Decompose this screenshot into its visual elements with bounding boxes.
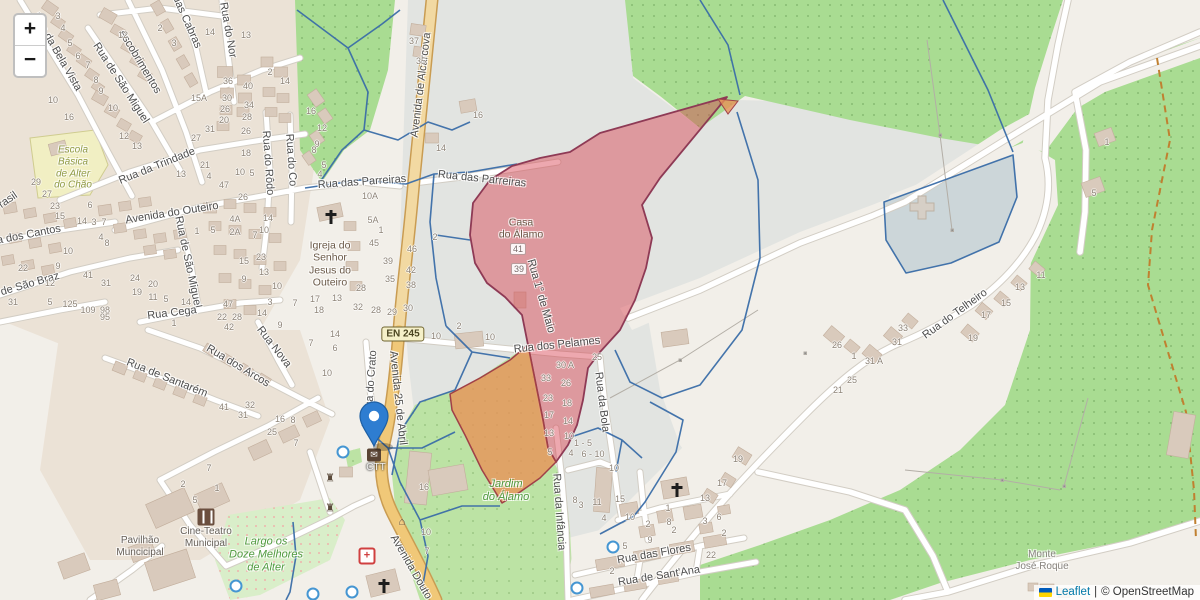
building (3, 202, 18, 214)
leaflet-link[interactable]: Leaflet (1056, 586, 1091, 598)
building (413, 46, 427, 58)
building (410, 24, 426, 37)
building (244, 204, 256, 213)
map-tiles (0, 0, 1200, 600)
building (43, 213, 56, 224)
building (63, 218, 76, 229)
building (683, 504, 703, 520)
building (133, 229, 146, 240)
building (239, 93, 252, 103)
ukraine-flag-icon (1039, 588, 1052, 597)
building (459, 99, 477, 114)
map-canvas[interactable]: Rua da Bela VistaRua de São Miguelescobr… (0, 0, 1200, 600)
building (118, 201, 131, 212)
building (209, 222, 221, 231)
attribution-bar: Leaflet | © OpenStreetMap (1034, 585, 1200, 600)
building (204, 203, 217, 213)
building (593, 467, 612, 512)
building (163, 249, 176, 260)
building (344, 222, 356, 231)
zoom-in-button[interactable]: + (15, 15, 45, 46)
building (346, 262, 358, 271)
building (224, 200, 236, 209)
building (717, 505, 730, 516)
building (153, 233, 166, 244)
building (239, 280, 251, 289)
building (41, 265, 54, 276)
building (275, 67, 288, 77)
building (261, 57, 273, 67)
building (661, 329, 689, 347)
building (340, 467, 353, 477)
building (277, 94, 289, 103)
building (218, 67, 233, 78)
building (138, 197, 151, 208)
building (657, 509, 674, 523)
building (639, 524, 656, 537)
building (48, 243, 61, 254)
attribution-separator: | (1094, 586, 1097, 598)
building (98, 204, 112, 216)
building (238, 75, 251, 85)
building (699, 522, 714, 534)
building (219, 274, 231, 283)
zoom-out-button[interactable]: − (15, 46, 45, 76)
building (237, 108, 249, 117)
building (264, 208, 276, 217)
building (274, 262, 286, 271)
zoom-control: + − (13, 13, 47, 78)
building (173, 229, 186, 240)
building (259, 286, 271, 295)
building (143, 245, 156, 256)
building (21, 260, 34, 271)
building (263, 88, 275, 97)
osm-link[interactable]: © OpenStreetMap (1101, 586, 1194, 598)
building (221, 88, 234, 98)
building (269, 234, 281, 243)
route-ref-badge: EN 245 (381, 327, 424, 342)
building (113, 223, 126, 234)
building (454, 331, 483, 349)
building (350, 282, 362, 291)
building (234, 250, 246, 259)
building (244, 306, 256, 315)
building (279, 114, 291, 123)
building (229, 226, 241, 235)
building (1, 255, 14, 266)
building (28, 238, 41, 249)
building (426, 133, 439, 143)
building (265, 108, 277, 117)
building (8, 233, 21, 244)
building (23, 208, 36, 219)
building (214, 246, 226, 255)
building (348, 242, 360, 251)
building (249, 230, 261, 239)
building (224, 300, 236, 309)
building (254, 256, 266, 265)
building (220, 106, 232, 115)
building (217, 122, 229, 131)
